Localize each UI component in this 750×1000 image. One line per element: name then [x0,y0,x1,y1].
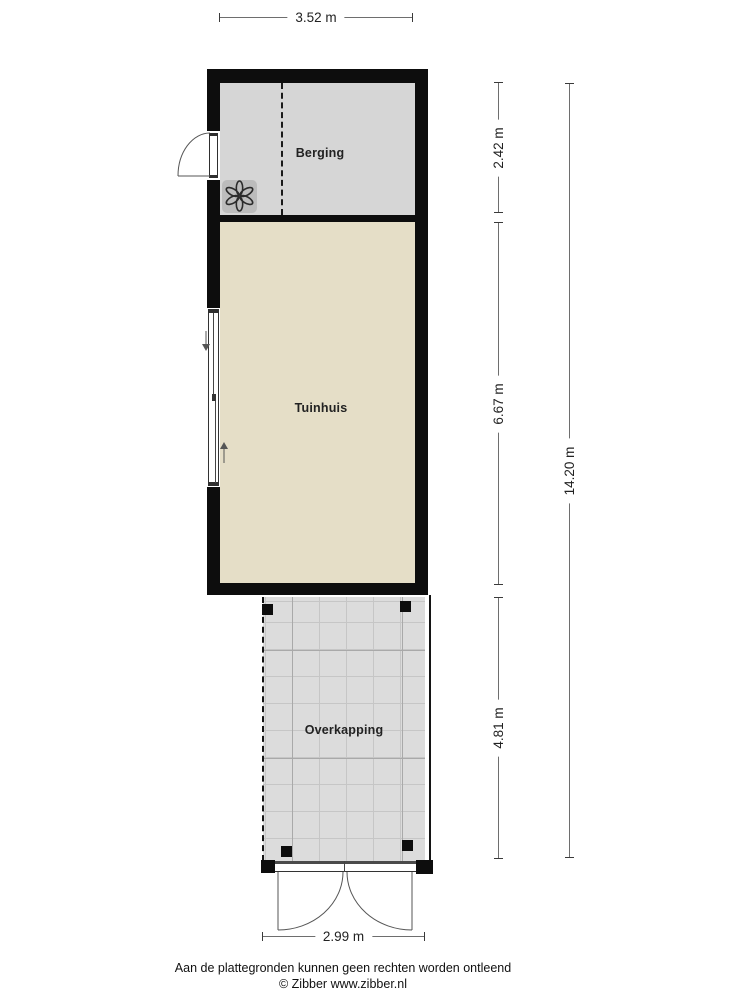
dimension-tick [219,13,220,22]
dimension-tick [262,932,263,941]
ventilation-unit-box [222,180,257,213]
double-door-frame [275,861,416,872]
dimension-label-width-top: 3.52 m [287,10,344,26]
double-door-divider [344,861,345,872]
overkapping-right-edge [429,595,431,873]
dimension-tick [494,82,503,83]
dimension-tick [494,858,503,859]
slide-direction-up-arrow-icon [218,440,230,464]
dimension-tick [494,584,503,585]
dimension-total-depth: 14.20 m [565,83,575,858]
canopy-post [281,846,292,857]
dimension-tick [565,83,574,84]
sliding-door-overlap [212,394,216,401]
dimension-overkapping-depth: 4.81 m [494,597,504,859]
dimension-tuinhuis-depth: 6.67 m [494,222,504,585]
room-label-overkapping: Overkapping [305,723,384,737]
dimension-tick [412,13,413,22]
floorplan-canvas: 3.52 m [0,0,750,1000]
overkapping-beam [292,597,293,861]
canopy-post [400,601,411,612]
room-label-berging: Berging [296,146,345,160]
dimension-tick [494,212,503,213]
sliding-door-panel [215,398,216,483]
dimension-label-total-depth: 14.20 m [562,438,578,503]
dimension-berging-depth: 2.42 m [494,82,504,213]
dimension-tick [424,932,425,941]
footer-disclaimer: Aan de plattegronden kunnen geen rechten… [0,960,686,976]
dimension-width-top: 3.52 m [219,10,413,26]
slide-direction-down-arrow-icon [200,330,212,352]
overkapping-dashed-edge [262,597,264,861]
dimension-width-bottom: 2.99 m [262,929,425,945]
overkapping-beam [263,650,425,651]
ventilation-fan-icon [222,180,257,213]
dimension-label-tuinhuis-depth: 6.67 m [491,375,507,432]
dimension-tick [494,597,503,598]
footer: Aan de plattegronden kunnen geen rechten… [0,960,686,992]
dimension-tick [565,857,574,858]
overkapping-beam [263,758,425,759]
room-label-tuinhuis: Tuinhuis [295,401,348,415]
overkapping-beam [402,597,403,861]
canopy-post [262,604,273,615]
canopy-post [402,840,413,851]
dimension-tick [494,222,503,223]
dimension-label-berging-depth: 2.42 m [491,119,507,176]
footer-credit: © Zibber www.zibber.nl [0,976,686,992]
dimension-label-width-bottom: 2.99 m [315,929,372,945]
dimension-label-overkapping-depth: 4.81 m [491,699,507,756]
berging-dashed-divider [281,83,283,215]
sliding-door-cap [208,482,219,486]
entry-door-swing-arc [172,128,217,183]
sliding-door-panel [213,313,214,398]
